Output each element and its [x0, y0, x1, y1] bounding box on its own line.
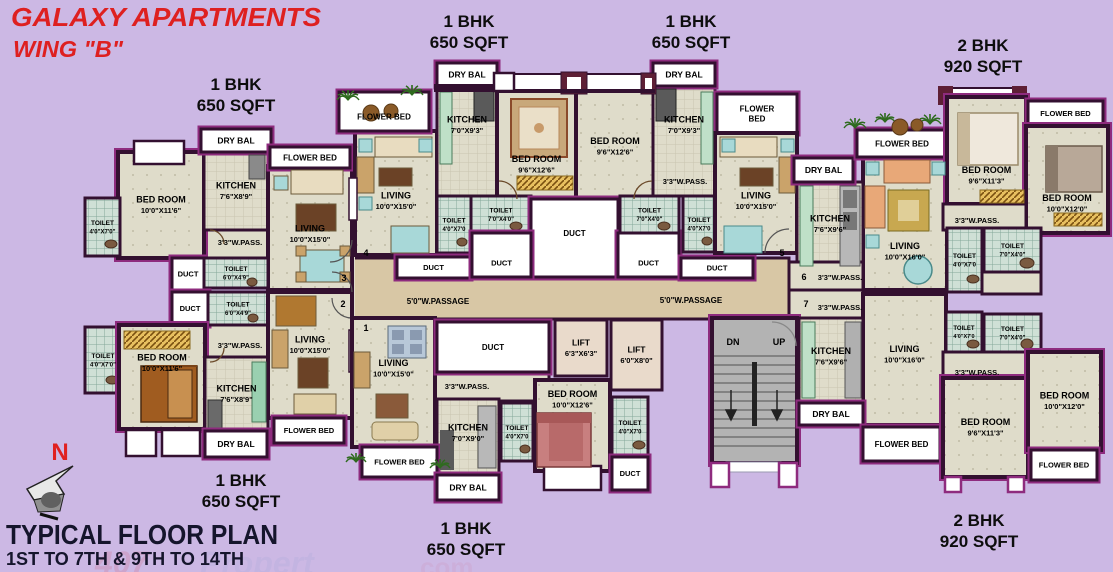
svg-text:7'6"X8'9": 7'6"X8'9": [220, 395, 253, 404]
svg-text:7'0"X9'0": 7'0"X9'0": [452, 434, 485, 443]
svg-text:BED ROOM: BED ROOM: [961, 417, 1011, 427]
svg-text:10'0"X15'0": 10'0"X15'0": [736, 202, 777, 211]
svg-text:3'3"W.PASS.: 3'3"W.PASS.: [818, 273, 862, 282]
svg-text:10'0"X15'0": 10'0"X15'0": [373, 370, 414, 379]
svg-text:DUCT: DUCT: [620, 469, 641, 478]
svg-text:FLOWER BED: FLOWER BED: [1039, 461, 1090, 470]
svg-text:BED ROOM: BED ROOM: [137, 353, 187, 363]
svg-text:9'6"X12'6": 9'6"X12'6": [518, 166, 555, 175]
svg-text:1 BHK: 1 BHK: [443, 12, 495, 31]
svg-text:6'0"X8'0": 6'0"X8'0": [620, 356, 653, 365]
svg-text:TOILET: TOILET: [506, 425, 529, 432]
svg-text:TOILET: TOILET: [91, 220, 114, 227]
svg-text:com: com: [420, 552, 473, 572]
svg-text:4'0"X7'0: 4'0"X7'0: [618, 429, 642, 435]
svg-text:6'0"X4'9": 6'0"X4'9": [225, 311, 251, 317]
svg-text:3'3"W.PASS.: 3'3"W.PASS.: [955, 216, 999, 225]
svg-text:10'0"X16'0": 10'0"X16'0": [885, 253, 926, 262]
svg-text:KITCHEN: KITCHEN: [810, 214, 850, 224]
svg-text:DN: DN: [727, 337, 740, 347]
svg-text:3'3"W.PASS.: 3'3"W.PASS.: [218, 238, 262, 247]
svg-text:6: 6: [801, 272, 806, 282]
svg-text:5'0"W.PASSAGE: 5'0"W.PASSAGE: [407, 297, 470, 306]
svg-text:4'0"X7'0": 4'0"X7'0": [90, 229, 116, 235]
svg-text:650 SQFT: 650 SQFT: [430, 33, 509, 52]
svg-text:DUCT: DUCT: [178, 270, 199, 279]
svg-text:FLOWER BED: FLOWER BED: [357, 112, 411, 121]
svg-text:7'0"X9'3": 7'0"X9'3": [668, 126, 701, 135]
svg-text:TOILET: TOILET: [225, 266, 248, 273]
svg-text:KITCHEN: KITCHEN: [216, 181, 256, 191]
svg-text:7'0"X4'0": 7'0"X4'0": [488, 217, 514, 223]
svg-text:5'0"W.PASSAGE: 5'0"W.PASSAGE: [660, 296, 723, 305]
svg-text:3'3"W.PASS.: 3'3"W.PASS.: [818, 303, 862, 312]
svg-text:3'3"W.PASS.: 3'3"W.PASS.: [955, 368, 999, 377]
svg-text:LIVING: LIVING: [295, 224, 325, 234]
svg-text:KITCHEN: KITCHEN: [217, 384, 257, 394]
svg-text:920 SQFT: 920 SQFT: [940, 532, 1019, 551]
svg-text:DUCT: DUCT: [482, 343, 504, 352]
svg-text:10'0"X12'0": 10'0"X12'0": [1044, 402, 1085, 411]
svg-text:10'0"X12'6": 10'0"X12'6": [552, 401, 593, 410]
svg-text:TOILET: TOILET: [490, 208, 513, 215]
svg-text:TYPICAL FLOOR PLAN: TYPICAL FLOOR PLAN: [6, 519, 278, 550]
svg-text:BED ROOM: BED ROOM: [512, 154, 562, 164]
svg-text:BED ROOM: BED ROOM: [1042, 193, 1092, 203]
svg-text:FLOWER BED: FLOWER BED: [283, 153, 337, 162]
svg-text:KITCHEN: KITCHEN: [447, 115, 487, 125]
svg-text:DRY BAL: DRY BAL: [449, 483, 486, 493]
svg-text:10'0"X11'6": 10'0"X11'6": [141, 206, 182, 215]
svg-text:2 BHK: 2 BHK: [957, 36, 1009, 55]
svg-text:TOILET: TOILET: [619, 420, 642, 427]
svg-text:9'6"X11'3": 9'6"X11'3": [967, 429, 1004, 438]
svg-text:4'0"X7'0: 4'0"X7'0: [687, 226, 711, 232]
svg-text:6'0"X4'9": 6'0"X4'9": [223, 275, 249, 281]
svg-text:TOILET: TOILET: [953, 326, 975, 332]
svg-text:920 SQFT: 920 SQFT: [944, 57, 1023, 76]
svg-text:4'0"X7'0: 4'0"X7'0: [953, 334, 974, 340]
svg-text:TOILET: TOILET: [688, 217, 711, 224]
svg-text:10'0"X11'6": 10'0"X11'6": [142, 364, 183, 373]
svg-text:FLOWER BED: FLOWER BED: [284, 426, 335, 435]
svg-text:LIVING: LIVING: [295, 335, 325, 345]
svg-text:DUCT: DUCT: [707, 264, 728, 273]
svg-text:650 SQFT: 650 SQFT: [197, 96, 276, 115]
svg-text:7'6"X9'6": 7'6"X9'6": [814, 225, 847, 234]
svg-text:DRY BAL: DRY BAL: [448, 70, 485, 80]
svg-text:LIVING: LIVING: [890, 241, 920, 251]
svg-text:DRY BAL: DRY BAL: [812, 409, 849, 419]
svg-text:650 SQFT: 650 SQFT: [652, 33, 731, 52]
svg-text:3'3"W.PASS.: 3'3"W.PASS.: [218, 341, 262, 350]
svg-text:7'0"X4'0": 7'0"X4'0": [637, 217, 663, 223]
svg-text:LIVING: LIVING: [741, 191, 771, 201]
svg-text:3'3"W.PASS.: 3'3"W.PASS.: [663, 177, 707, 186]
svg-text:GALAXY APARTMENTS: GALAXY APARTMENTS: [11, 2, 322, 32]
svg-text:9'6"X11'3": 9'6"X11'3": [968, 177, 1005, 186]
svg-text:DRY BAL: DRY BAL: [805, 165, 842, 175]
svg-text:7'0"X4'0": 7'0"X4'0": [1000, 335, 1026, 341]
svg-text:WING "B": WING "B": [13, 36, 124, 62]
svg-text:DRY BAL: DRY BAL: [665, 70, 702, 80]
svg-text:UP: UP: [773, 337, 786, 347]
svg-text:TOILET: TOILET: [92, 353, 115, 360]
svg-text:DUCT: DUCT: [563, 229, 585, 238]
svg-text:DUCT: DUCT: [638, 259, 659, 268]
svg-text:TOILET: TOILET: [443, 218, 466, 225]
svg-text:FLOWER BED: FLOWER BED: [374, 458, 425, 467]
svg-text:4'0"X7'0: 4'0"X7'0: [505, 434, 529, 440]
svg-text:FLOWER BED: FLOWER BED: [875, 440, 929, 449]
svg-text:7'0"X9'3": 7'0"X9'3": [451, 126, 484, 135]
svg-text:4'0"X7'0": 4'0"X7'0": [90, 362, 116, 368]
svg-text:TOILET: TOILET: [1001, 243, 1024, 250]
svg-text:BED ROOM: BED ROOM: [136, 195, 186, 205]
svg-text:10'0"X12'0": 10'0"X12'0": [1047, 205, 1088, 214]
svg-text:LIFT: LIFT: [628, 345, 647, 355]
svg-text:DUCT: DUCT: [491, 259, 512, 268]
svg-text:10'0"X15'0": 10'0"X15'0": [290, 235, 331, 244]
svg-text:DUCT: DUCT: [180, 304, 201, 313]
svg-text:10'0"X16'0": 10'0"X16'0": [884, 356, 925, 365]
svg-text:TOILET: TOILET: [227, 302, 250, 309]
svg-text:TOILET: TOILET: [638, 208, 661, 215]
svg-text:10'0"X15'0": 10'0"X15'0": [290, 346, 331, 355]
svg-text:7'6"X9'6": 7'6"X9'6": [815, 358, 848, 367]
svg-text:LIVING: LIVING: [381, 191, 411, 201]
svg-text:1ST TO 7TH & 9TH TO 14TH: 1ST TO 7TH & 9TH TO 14TH: [6, 549, 244, 569]
svg-text:BED ROOM: BED ROOM: [548, 389, 598, 399]
svg-text:DRY BAL: DRY BAL: [217, 439, 254, 449]
svg-text:2: 2: [340, 299, 345, 309]
svg-text:4: 4: [363, 248, 368, 258]
svg-text:BED ROOM: BED ROOM: [962, 165, 1012, 175]
svg-text:TOILET: TOILET: [953, 253, 976, 260]
svg-text:N: N: [51, 439, 68, 466]
svg-text:FLOWER BED: FLOWER BED: [875, 139, 929, 148]
svg-text:1 BHK: 1 BHK: [210, 75, 262, 94]
svg-text:KITCHEN: KITCHEN: [811, 346, 851, 356]
svg-text:TOILET: TOILET: [1001, 326, 1024, 333]
svg-text:1 BHK: 1 BHK: [215, 471, 267, 490]
svg-text:DUCT: DUCT: [423, 263, 444, 272]
svg-text:1 BHK: 1 BHK: [665, 12, 717, 31]
svg-text:650 SQFT: 650 SQFT: [202, 492, 281, 511]
svg-text:7'0"X4'0": 7'0"X4'0": [1000, 252, 1026, 258]
svg-text:KITCHEN: KITCHEN: [448, 423, 488, 433]
svg-text:4'0"X7'0: 4'0"X7'0: [442, 227, 466, 233]
svg-text:9'6"X12'6": 9'6"X12'6": [597, 148, 634, 157]
svg-text:2 BHK: 2 BHK: [953, 511, 1005, 530]
svg-text:3'3"W.PASS.: 3'3"W.PASS.: [445, 382, 489, 391]
svg-text:LIVING: LIVING: [889, 344, 919, 354]
svg-text:DRY BAL: DRY BAL: [217, 136, 254, 146]
svg-text:BED: BED: [749, 114, 766, 123]
svg-text:1 BHK: 1 BHK: [440, 519, 492, 538]
svg-text:KITCHEN: KITCHEN: [664, 115, 704, 125]
svg-text:7: 7: [803, 299, 808, 309]
svg-text:3: 3: [341, 273, 346, 283]
svg-text:LIFT: LIFT: [572, 338, 591, 348]
svg-text:5: 5: [779, 248, 784, 258]
svg-text:LIVING: LIVING: [378, 358, 408, 368]
svg-text:BED ROOM: BED ROOM: [1040, 391, 1090, 401]
svg-text:7'6"X8'9": 7'6"X8'9": [220, 192, 253, 201]
svg-text:6'3"X6'3": 6'3"X6'3": [565, 349, 598, 358]
svg-text:4'0"X7'0: 4'0"X7'0: [953, 262, 977, 268]
svg-text:1: 1: [363, 323, 368, 333]
svg-text:10'0"X15'0": 10'0"X15'0": [376, 202, 417, 211]
svg-text:FLOWER BED: FLOWER BED: [1040, 109, 1091, 118]
svg-text:FLOWER: FLOWER: [740, 104, 775, 113]
svg-text:BED ROOM: BED ROOM: [590, 136, 640, 146]
